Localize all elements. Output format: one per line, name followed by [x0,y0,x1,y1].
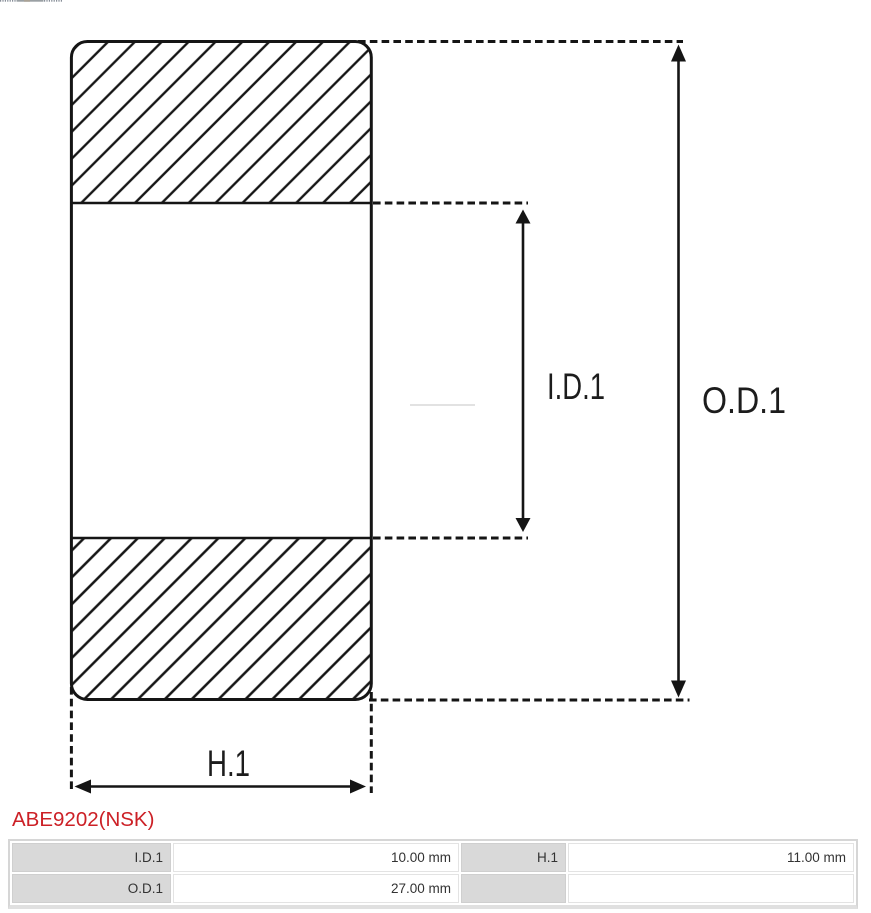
svg-text:H.1: H.1 [207,743,250,784]
svg-text:I.D.1: I.D.1 [547,366,605,407]
svg-text:O.D.1: O.D.1 [702,380,786,421]
